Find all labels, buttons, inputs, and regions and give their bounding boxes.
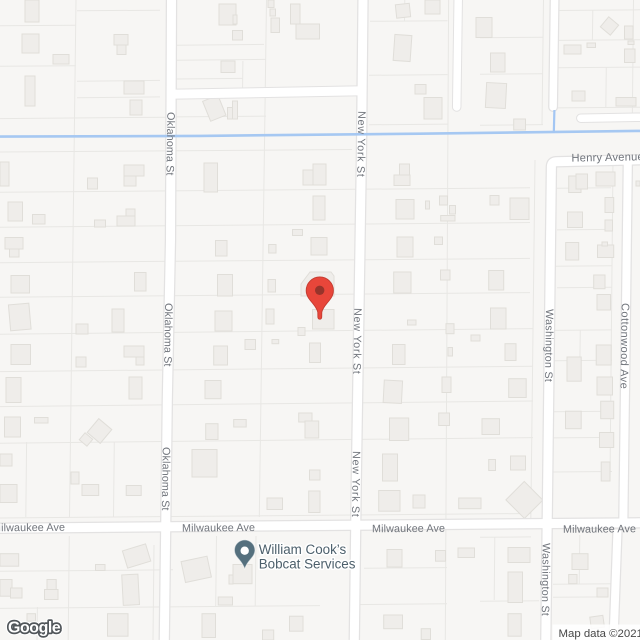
svg-text:Oklahoma St: Oklahoma St — [161, 303, 174, 367]
svg-text:Bobcat Services: Bobcat Services — [259, 556, 356, 571]
svg-text:Oklahoma St: Oklahoma St — [164, 112, 177, 176]
svg-text:Map data ©2021: Map data ©2021 — [559, 628, 640, 640]
svg-text:Milwaukee Ave: Milwaukee Ave — [0, 522, 65, 535]
svg-text:Washington St: Washington St — [539, 543, 552, 616]
svg-text:Milwaukee Ave: Milwaukee Ave — [372, 523, 445, 536]
svg-text:Milwaukee Ave: Milwaukee Ave — [563, 523, 636, 536]
svg-text:Google: Google — [8, 620, 61, 637]
svg-text:New York St: New York St — [354, 111, 367, 178]
svg-text:Cottonwood Ave: Cottonwood Ave — [617, 303, 630, 389]
svg-text:Milwaukee Ave: Milwaukee Ave — [182, 522, 255, 535]
svg-text:New York St: New York St — [349, 451, 362, 518]
svg-text:New York St: New York St — [350, 308, 363, 375]
svg-text:Washington St: Washington St — [542, 309, 555, 382]
svg-text:William Cook’s: William Cook’s — [259, 542, 347, 557]
svg-text:Oklahoma St: Oklahoma St — [159, 447, 172, 511]
svg-text:Henry Avenue: Henry Avenue — [571, 151, 640, 164]
